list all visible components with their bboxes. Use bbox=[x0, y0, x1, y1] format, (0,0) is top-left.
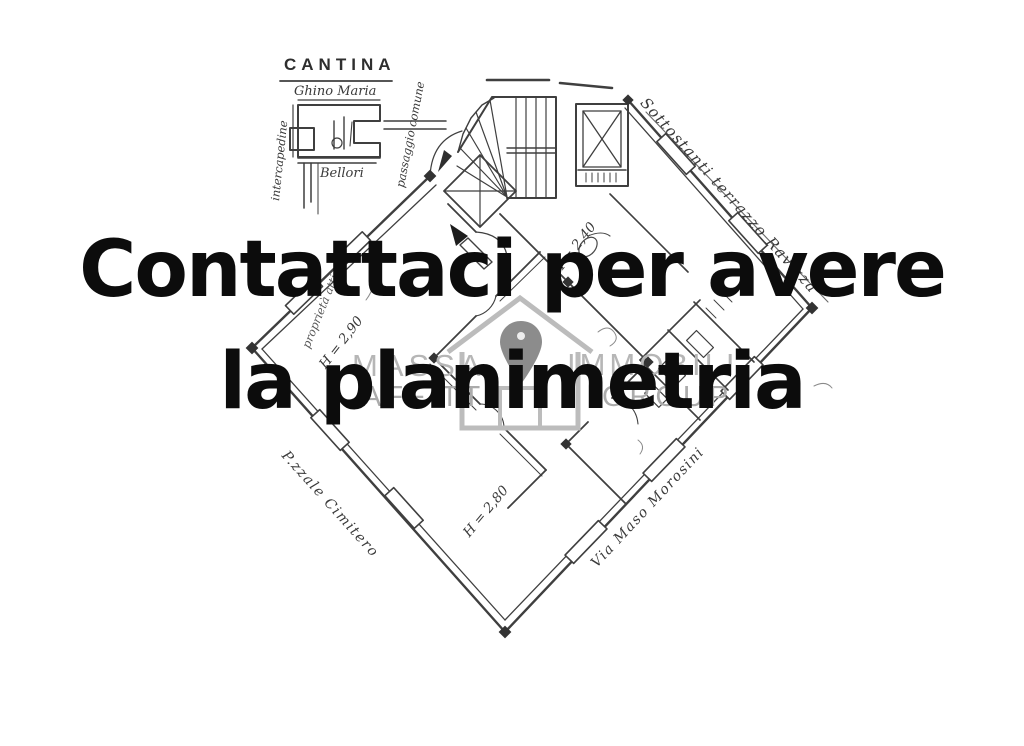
cantina-bottom-label: Bellori bbox=[320, 166, 364, 181]
elevator-shaft bbox=[576, 104, 628, 186]
floorplan-teaser-image: CANTINA Ghino Maria intercapedine passag… bbox=[0, 0, 1024, 746]
spiral-staircase bbox=[430, 80, 612, 198]
overlay-title-line2: la planimetria bbox=[0, 326, 1024, 438]
cantina-title-label: CANTINA bbox=[284, 55, 396, 75]
overlay-title-line1: Contattaci per avere bbox=[0, 214, 1024, 326]
cantina-subtitle-label: Ghino Maria bbox=[294, 84, 376, 99]
overlay-title: Contattaci per avere la planimetria bbox=[0, 214, 1024, 438]
